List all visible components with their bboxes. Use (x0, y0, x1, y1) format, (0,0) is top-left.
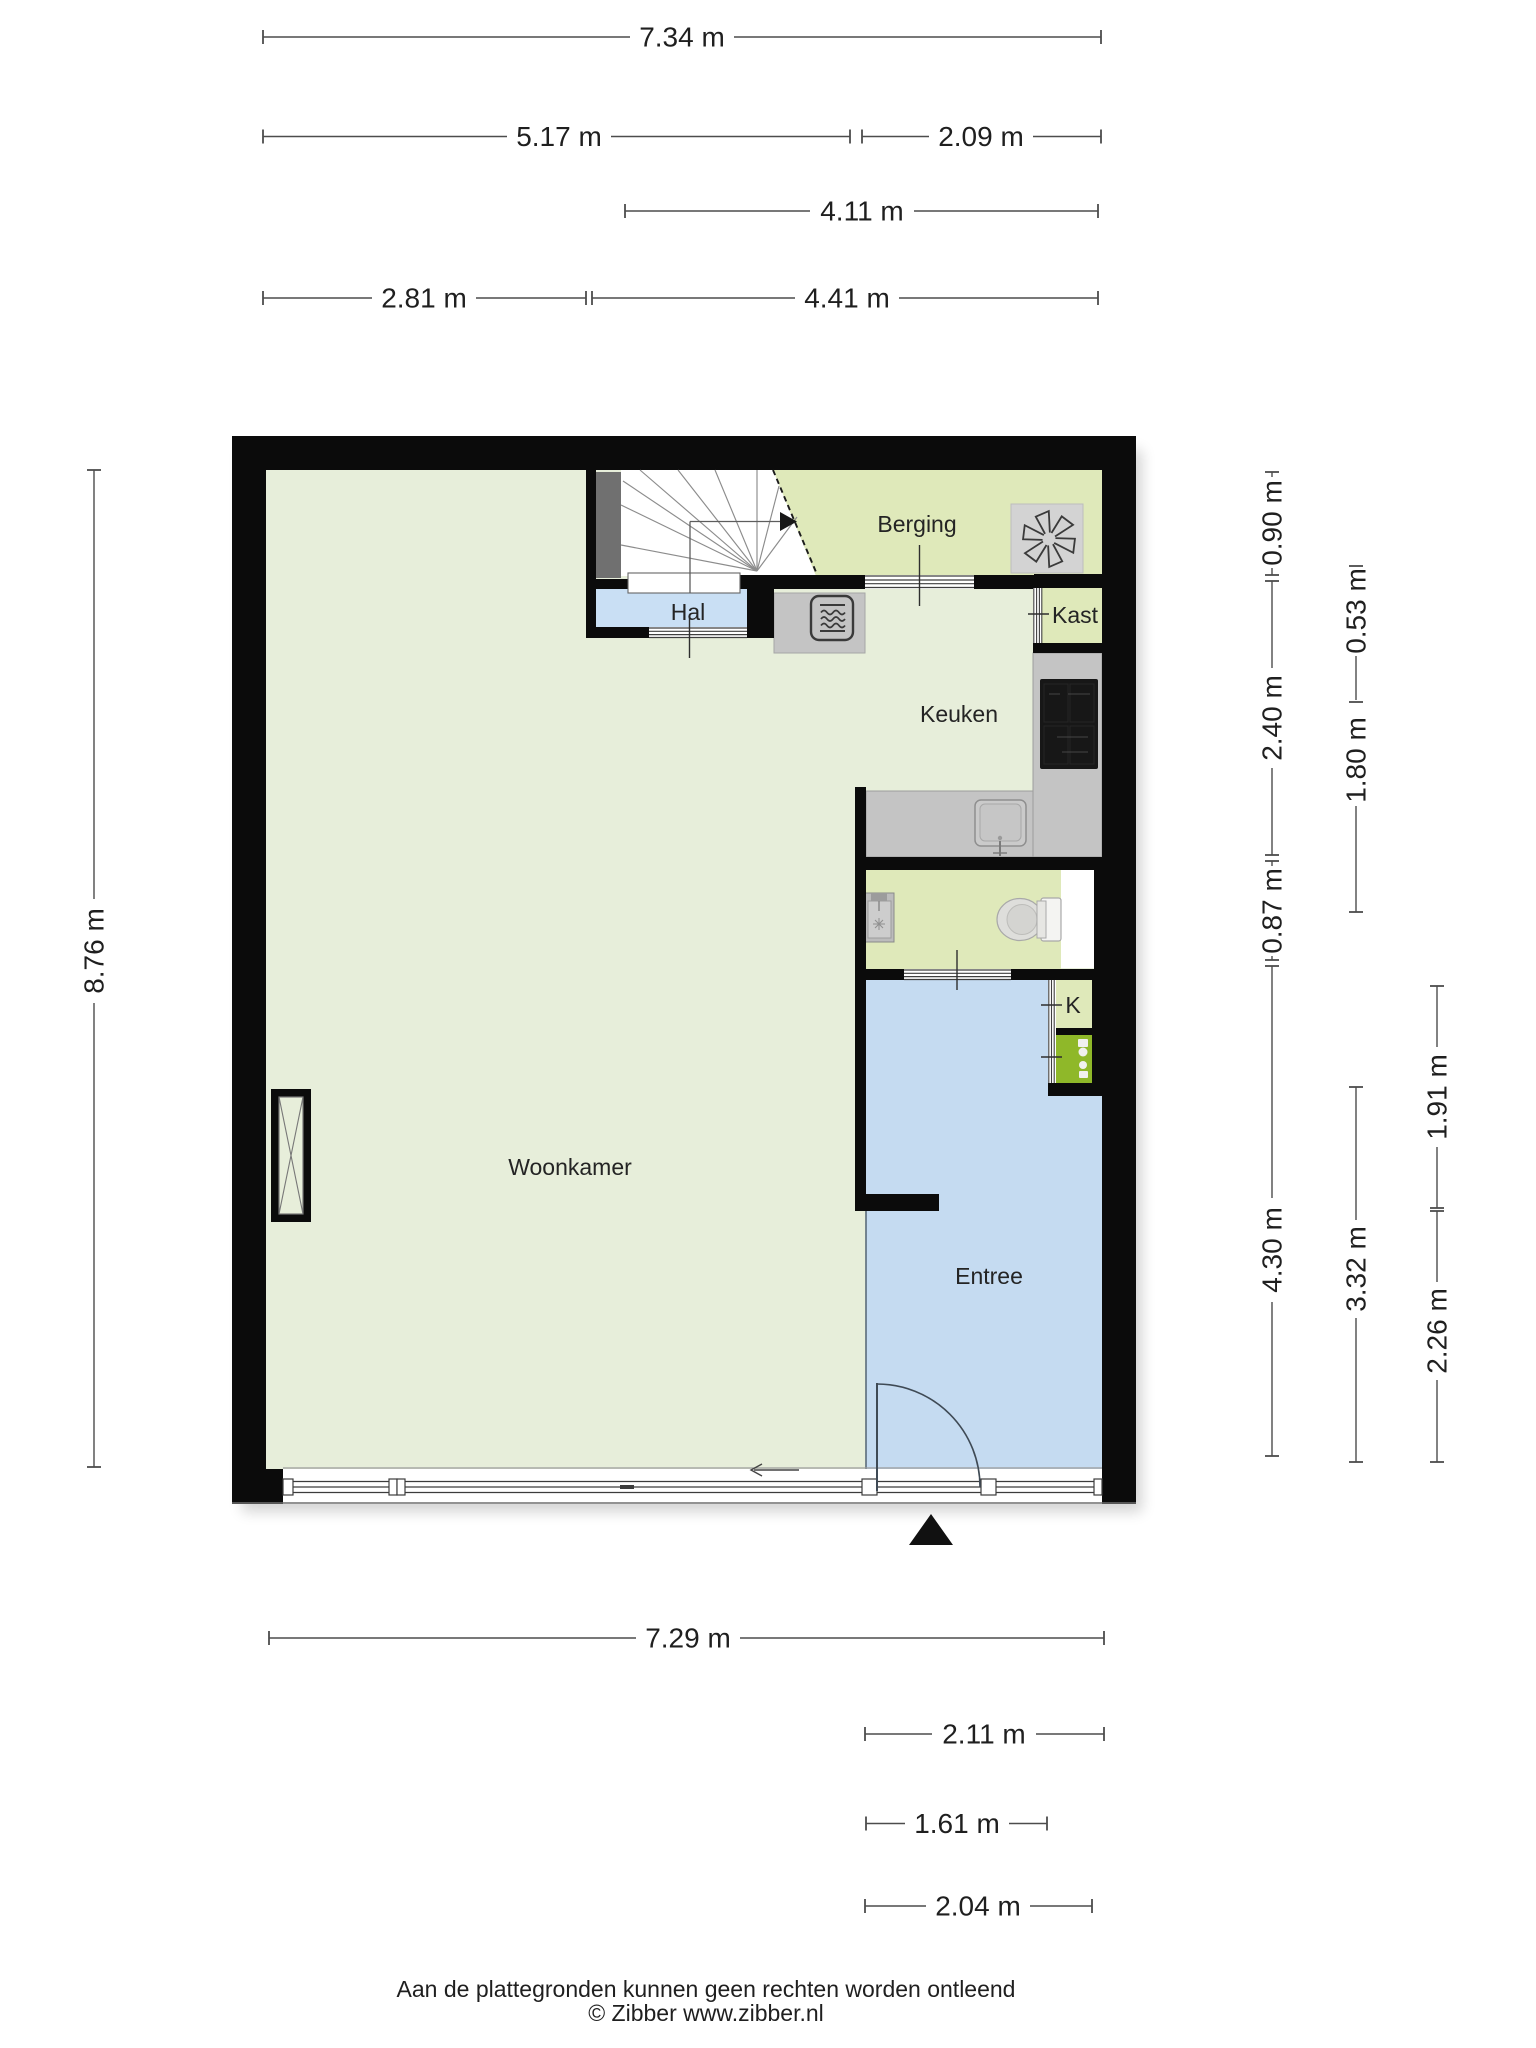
svg-text:Keuken: Keuken (920, 701, 998, 727)
svg-text:Entree: Entree (955, 1263, 1023, 1289)
svg-text:3.32 m: 3.32 m (1341, 1226, 1372, 1312)
svg-text:1.61 m: 1.61 m (914, 1808, 1000, 1839)
svg-text:4.30 m: 4.30 m (1257, 1207, 1288, 1293)
svg-text:2.11 m: 2.11 m (942, 1719, 1026, 1750)
svg-text:8.76 m: 8.76 m (79, 908, 110, 994)
svg-text:1.80 m: 1.80 m (1341, 717, 1372, 803)
svg-text:2.40 m: 2.40 m (1257, 675, 1288, 761)
svg-text:4.11 m: 4.11 m (820, 196, 904, 227)
svg-text:0.87 m: 0.87 m (1257, 868, 1288, 954)
svg-text:Woonkamer: Woonkamer (508, 1154, 632, 1180)
svg-text:Aan de plattegronden kunnen ge: Aan de plattegronden kunnen geen rechten… (397, 1976, 1016, 2002)
svg-text:2.26 m: 2.26 m (1422, 1288, 1453, 1374)
svg-text:2.04 m: 2.04 m (935, 1891, 1021, 1922)
svg-text:0.53 m: 0.53 m (1341, 568, 1372, 654)
svg-text:1.91 m: 1.91 m (1422, 1054, 1453, 1140)
svg-text:4.41 m: 4.41 m (804, 283, 890, 314)
svg-text:Kast: Kast (1052, 602, 1099, 628)
svg-text:5.17 m: 5.17 m (516, 121, 602, 152)
svg-text:2.09 m: 2.09 m (938, 121, 1024, 152)
svg-text:2.81 m: 2.81 m (381, 283, 467, 314)
svg-text:7.34 m: 7.34 m (639, 22, 725, 53)
svg-text:0.90 m: 0.90 m (1257, 480, 1288, 566)
svg-text:K: K (1065, 992, 1081, 1018)
svg-text:Berging: Berging (877, 511, 956, 537)
svg-text:7.29 m: 7.29 m (645, 1623, 731, 1654)
svg-text:© Zibber www.zibber.nl: © Zibber www.zibber.nl (588, 2000, 824, 2026)
svg-text:Hal: Hal (671, 599, 706, 625)
